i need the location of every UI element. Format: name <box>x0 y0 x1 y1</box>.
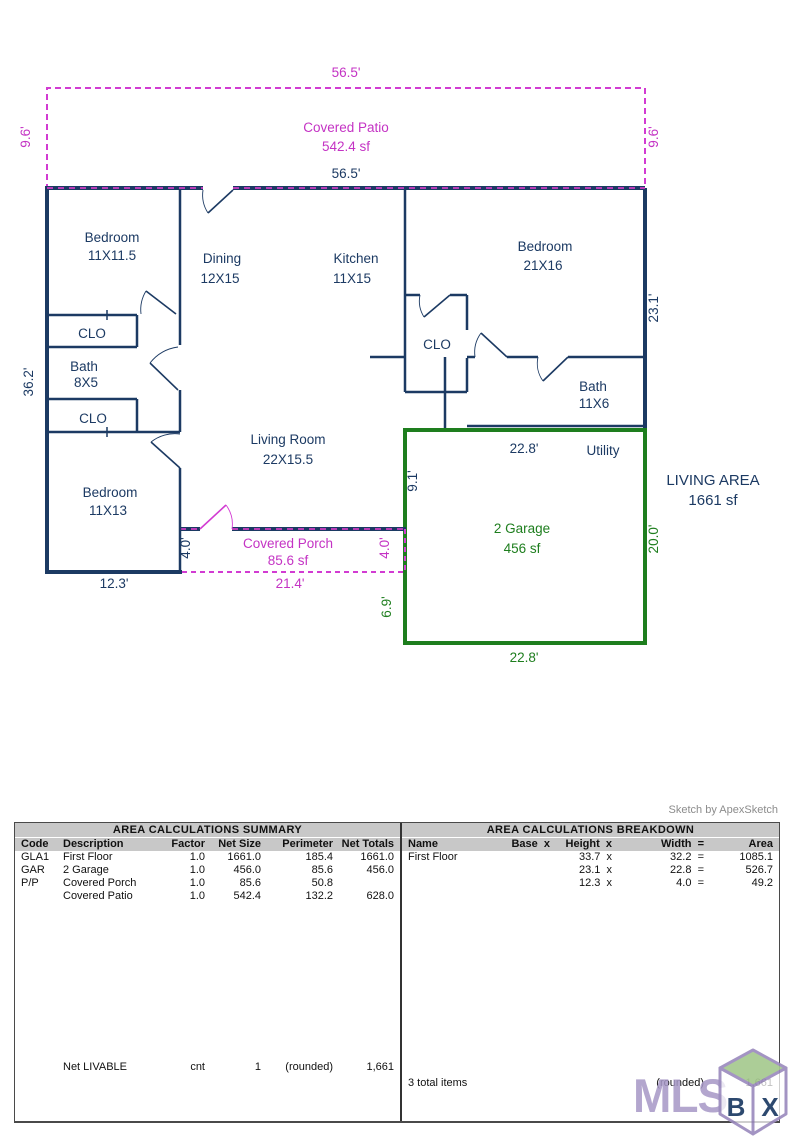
table-row: GAR 2 Garage 1.0 456.0 85.6 456.0 <box>15 864 400 877</box>
summary-header-row: Code Description Factor Net Size Perimet… <box>15 838 400 851</box>
clo1-label: CLO <box>78 326 106 341</box>
cell: GAR <box>15 864 61 877</box>
cell: 185.4 <box>263 851 335 864</box>
house-width-dim: 56.5' <box>332 166 361 181</box>
bath2-size: 11X6 <box>579 396 610 411</box>
porch-bottom-dim: 21.4' <box>276 576 305 591</box>
porch-left-dim: 4.0' <box>178 537 193 558</box>
col-width: Width = <box>614 838 706 851</box>
cell: 23.1 x <box>552 864 614 877</box>
col-net-size: Net Size <box>207 838 263 851</box>
cell <box>402 877 507 890</box>
table-row: Net LIVABLE cnt 1 (rounded) 1,661 <box>15 1061 400 1074</box>
cell <box>335 877 400 890</box>
bedroom1-size: 11X11.5 <box>88 248 136 263</box>
garage-left-upper-dim: 9.1' <box>405 470 420 491</box>
bedroom2-size: 21X16 <box>523 258 562 273</box>
cell: 49.2 <box>706 877 779 890</box>
col-factor: Factor <box>165 838 207 851</box>
patio-top-dim: 56.5' <box>332 65 361 80</box>
cell: Covered Patio <box>61 890 165 903</box>
bedroom1-label: Bedroom <box>85 230 140 245</box>
summary-title: AREA CALCULATIONS SUMMARY <box>15 823 400 838</box>
cell: (rounded) <box>263 1061 335 1074</box>
patio-area: 542.4 sf <box>322 139 370 154</box>
summary-footer: Net LIVABLE cnt 1 (rounded) 1,661 <box>15 1061 400 1074</box>
cell <box>402 864 507 877</box>
cell: 456.0 <box>335 864 400 877</box>
cell <box>15 1061 61 1074</box>
clo2-label: CLO <box>79 411 107 426</box>
cell: 526.7 <box>706 864 779 877</box>
cell: 1.0 <box>165 851 207 864</box>
cell: 32.2 = <box>614 851 706 864</box>
right-dim: 23.1' <box>646 294 661 323</box>
summary-table: AREA CALCULATIONS SUMMARY Code Descripti… <box>15 823 400 1121</box>
cell: 22.8 = <box>614 864 706 877</box>
cube-front-letter: B <box>727 1092 746 1122</box>
garage-left-lower-dim: 6.9' <box>379 596 394 617</box>
cell: 2 Garage <box>61 864 165 877</box>
net-livable-label: Net LIVABLE <box>61 1061 165 1074</box>
garage-area: 456 sf <box>504 541 541 556</box>
cell: 4.0 = <box>614 877 706 890</box>
cell: 85.6 <box>207 877 263 890</box>
cell: P/P <box>15 877 61 890</box>
cell: 132.2 <box>263 890 335 903</box>
patio-label: Covered Patio <box>303 120 389 135</box>
cell: First Floor <box>402 851 507 864</box>
cell: 50.8 <box>263 877 335 890</box>
breakdown-grid: Name Base x Height x Width = Area First … <box>402 838 779 890</box>
bedroom2-label: Bedroom <box>518 239 573 254</box>
garage-right-dim: 20.0' <box>646 525 661 554</box>
table-row: GLA1 First Floor 1.0 1661.0 185.4 1661.0 <box>15 851 400 864</box>
cell: GLA1 <box>15 851 61 864</box>
cell: 1661.0 <box>207 851 263 864</box>
col-area: Area <box>706 838 779 851</box>
living-area-value: 1661 sf <box>688 492 738 509</box>
col-base: Base x <box>507 838 552 851</box>
net-livable-total: 1,661 <box>335 1061 400 1074</box>
cube-side-letter: X <box>761 1092 779 1122</box>
mls-watermark-cube-icon: B X <box>716 1046 792 1138</box>
col-net-totals: Net Totals <box>335 838 400 851</box>
col-height: Height x <box>552 838 614 851</box>
patio-right-dim: 9.6' <box>646 126 661 147</box>
cell <box>15 890 61 903</box>
clo3-label: CLO <box>423 337 451 352</box>
cell: 12.3 x <box>552 877 614 890</box>
garage-label: 2 Garage <box>494 521 550 536</box>
col-code: Code <box>15 838 61 851</box>
porch-label: Covered Porch <box>243 536 333 551</box>
cell: 456.0 <box>207 864 263 877</box>
cell: 628.0 <box>335 890 400 903</box>
cell <box>507 851 552 864</box>
dining-label: Dining <box>203 251 241 266</box>
cell: First Floor <box>61 851 165 864</box>
col-perimeter: Perimeter <box>263 838 335 851</box>
sketch-page: 56.5' 9.6' 9.6' Covered Patio 542.4 sf 5… <box>0 0 792 1138</box>
bedroom3-size: 11X13 <box>89 503 127 518</box>
cell: cnt <box>165 1061 207 1074</box>
garage-bottom-dim: 22.8' <box>510 650 539 665</box>
cell: Covered Porch <box>61 877 165 890</box>
mls-watermark-text: MLS <box>633 1068 727 1123</box>
cell: 1661.0 <box>335 851 400 864</box>
table-row: P/P Covered Porch 1.0 85.6 50.8 <box>15 877 400 890</box>
table-row: Covered Patio 1.0 542.4 132.2 628.0 <box>15 890 400 903</box>
bottom-left-dim: 12.3' <box>100 576 129 591</box>
col-description: Description <box>61 838 165 851</box>
bath1-label: Bath <box>70 359 98 374</box>
floor-plan: 56.5' 9.6' 9.6' Covered Patio 542.4 sf 5… <box>0 0 792 700</box>
cell: 85.6 <box>263 864 335 877</box>
cell: 1.0 <box>165 864 207 877</box>
living-area-label: LIVING AREA <box>666 472 759 489</box>
breakdown-header-row: Name Base x Height x Width = Area <box>402 838 779 851</box>
left-dim: 36.2' <box>21 368 36 397</box>
table-row: 23.1 x 22.8 = 526.7 <box>402 864 779 877</box>
living-room-size: 22X15.5 <box>263 452 313 467</box>
dining-size: 12X15 <box>200 271 239 286</box>
porch-right-dim: 4.0' <box>377 537 392 558</box>
col-name: Name <box>402 838 507 851</box>
bath2-label: Bath <box>579 379 607 394</box>
cell: 1.0 <box>165 890 207 903</box>
table-row: 12.3 x 4.0 = 49.2 <box>402 877 779 890</box>
cell <box>507 864 552 877</box>
living-room-label: Living Room <box>250 432 325 447</box>
cell: 1 <box>207 1061 263 1074</box>
cell: 542.4 <box>207 890 263 903</box>
porch-area: 85.6 sf <box>268 553 309 568</box>
breakdown-title: AREA CALCULATIONS BREAKDOWN <box>402 823 779 838</box>
utility-label: Utility <box>587 443 620 458</box>
cell: 1085.1 <box>706 851 779 864</box>
cell <box>507 877 552 890</box>
kitchen-size: 11X15 <box>333 271 371 286</box>
garage-top-dim: 22.8' <box>510 441 539 456</box>
kitchen-label: Kitchen <box>333 251 378 266</box>
cell: 33.7 x <box>552 851 614 864</box>
bath1-size: 8X5 <box>74 375 98 390</box>
summary-grid: Code Description Factor Net Size Perimet… <box>15 838 400 903</box>
sketch-credit: Sketch by ApexSketch <box>669 804 778 816</box>
patio-left-dim: 9.6' <box>18 126 33 147</box>
total-items-label: 3 total items <box>402 1077 507 1090</box>
bedroom3-label: Bedroom <box>83 485 138 500</box>
porch-door-symbol <box>200 505 232 529</box>
table-row: First Floor 33.7 x 32.2 = 1085.1 <box>402 851 779 864</box>
garage-outline <box>405 430 645 643</box>
cell: 1.0 <box>165 877 207 890</box>
